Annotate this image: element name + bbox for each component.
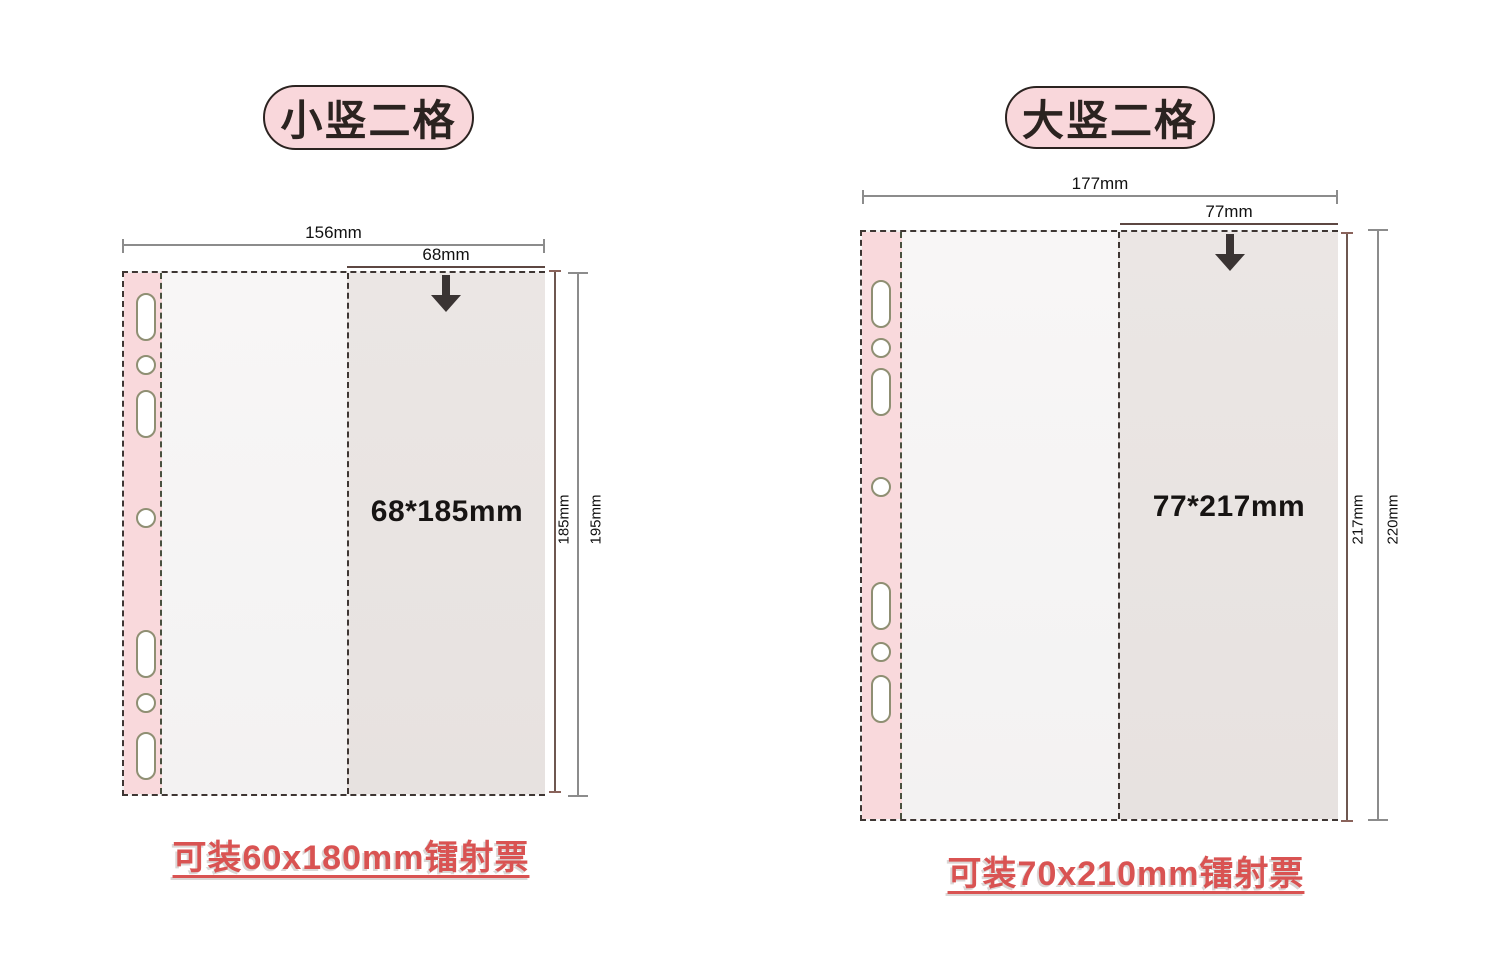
dimension-line: [862, 195, 1338, 197]
capacity-caption: 可装70x210mm镭射票: [897, 846, 1355, 895]
insert-pocket: 77*217mm: [1118, 232, 1338, 819]
badge-label: 大竖二格: [1022, 87, 1198, 148]
oblong-binder-hole: [871, 582, 891, 630]
round-binder-hole: [871, 642, 891, 662]
pocket-height-label: 185mm: [556, 488, 573, 552]
pocket-width-label: 68mm: [347, 246, 545, 264]
pocket-page-large: 77*217mm: [860, 230, 1338, 821]
round-binder-hole: [136, 508, 156, 528]
pocket-height-label: 217mm: [1350, 488, 1367, 552]
oblong-binder-hole: [871, 368, 891, 416]
oblong-binder-hole: [136, 630, 156, 678]
down-arrow-icon: [431, 275, 461, 312]
panel-small-two-grid: 小竖二格 156mm 68mm 68*185mm 185mm 195mm: [0, 0, 700, 969]
badge-small-two-grid: 小竖二格: [263, 85, 474, 150]
oblong-binder-hole: [136, 390, 156, 438]
pocket-size-label: 68*185mm: [349, 495, 545, 529]
capacity-caption: 可装60x180mm镭射票: [122, 830, 580, 879]
outer-height-label: 195mm: [588, 488, 605, 552]
pocket-page-small: 68*185mm: [122, 271, 545, 796]
binder-spine-strip: [124, 273, 162, 794]
oblong-binder-hole: [136, 293, 156, 341]
oblong-binder-hole: [871, 280, 891, 328]
badge-large-two-grid: 大竖二格: [1005, 86, 1215, 149]
pocket-width-label: 77mm: [1120, 203, 1338, 221]
outer-width-label: 156mm: [122, 224, 545, 242]
outer-width-label: 177mm: [862, 175, 1338, 193]
oblong-binder-hole: [136, 732, 156, 780]
insert-pocket: 68*185mm: [347, 273, 545, 794]
pocket-size-label: 77*217mm: [1120, 490, 1338, 524]
badge-label: 小竖二格: [280, 87, 456, 148]
outer-height-dimension: [577, 272, 579, 797]
oblong-binder-hole: [871, 675, 891, 723]
round-binder-hole: [871, 338, 891, 358]
panel-large-two-grid: 大竖二格 177mm 77mm 77*217mm 217mm 220mm: [700, 0, 1500, 969]
pocket-width-dimension: 77mm: [1120, 203, 1338, 225]
outer-height-dimension: [1377, 229, 1379, 821]
outer-height-label: 220mm: [1385, 488, 1402, 552]
dimension-line: [1120, 223, 1338, 225]
dimension-line: [347, 266, 545, 268]
down-arrow-icon: [1215, 234, 1245, 271]
round-binder-hole: [871, 477, 891, 497]
outer-width-dimension: 177mm: [862, 175, 1338, 197]
outer-width-dimension: 156mm: [122, 224, 545, 246]
binder-spine-strip: [862, 232, 902, 819]
round-binder-hole: [136, 693, 156, 713]
round-binder-hole: [136, 355, 156, 375]
pocket-width-dimension: 68mm: [347, 246, 545, 268]
pocket-height-dimension: [1346, 232, 1348, 822]
